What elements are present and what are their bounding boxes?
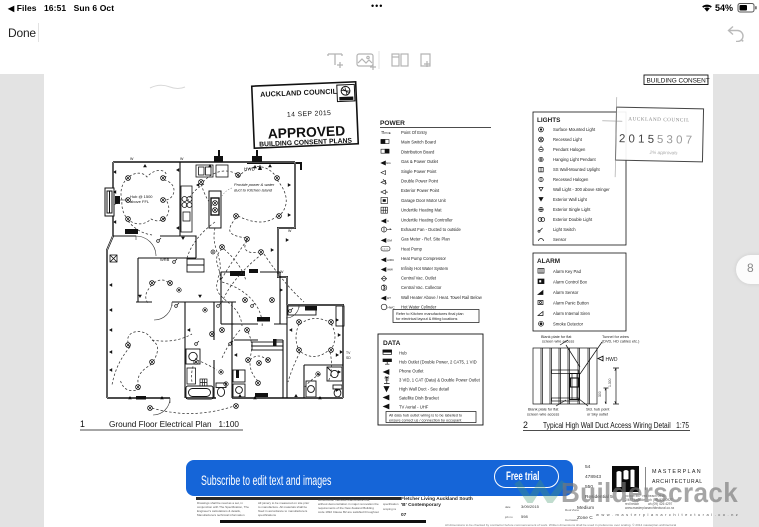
- svg-text:above FFL: above FFL: [130, 199, 150, 204]
- svg-text:BUILDING CONSENT: BUILDING CONSENT: [647, 78, 710, 85]
- svg-text:POWER: POWER: [380, 120, 405, 127]
- svg-text:Phone Outlet: Phone Outlet: [399, 369, 424, 374]
- svg-text:54%: 54%: [715, 3, 733, 13]
- svg-text:Distribution Board: Distribution Board: [401, 149, 435, 154]
- svg-text:Std. hub point: Std. hub point: [586, 408, 610, 412]
- svg-text:Hub Outlet (Double Power, 2 CA: Hub Outlet (Double Power, 2 CAT5, 1 VID: [399, 360, 477, 365]
- svg-text:Alarm Control Box: Alarm Control Box: [553, 280, 588, 285]
- svg-text:AIRC: AIRC: [387, 258, 395, 262]
- svg-text:14 SEP 2015: 14 SEP 2015: [287, 110, 332, 119]
- svg-text:Tunnel for wires: Tunnel for wires: [602, 335, 629, 339]
- svg-text:IHW: IHW: [387, 268, 393, 272]
- svg-text:Alarm Internal Siren: Alarm Internal Siren: [553, 311, 591, 316]
- svg-text:LIGHTS: LIGHTS: [537, 117, 561, 124]
- svg-text:5307: 5307: [657, 134, 696, 147]
- svg-text:Double Power Point: Double Power Point: [401, 179, 439, 184]
- svg-text:2: 2: [523, 420, 528, 430]
- svg-text:All data hub outlet wiring is: All data hub outlet wiring is to be labe…: [389, 414, 462, 418]
- svg-text:Alarm Panic Button: Alarm Panic Button: [553, 301, 590, 306]
- svg-text:C: C: [387, 219, 390, 223]
- svg-text:HWD: HWD: [606, 357, 618, 363]
- svg-text:Pendant Halogen: Pendant Halogen: [553, 147, 586, 152]
- svg-text:DATA: DATA: [383, 340, 401, 347]
- svg-text:3 VID, 1 CAT (Data) & Double P: 3 VID, 1 CAT (Data) & Double Power Outle…: [399, 378, 481, 383]
- svg-text:Provide power & water: Provide power & water: [234, 182, 275, 187]
- svg-text:or Sky outlet: or Sky outlet: [587, 412, 609, 416]
- svg-text:Typical High Wall Duct Access: Typical High Wall Duct Access Wiring Det…: [543, 421, 689, 430]
- svg-text:Exhaust Fan - Ducted to outsid: Exhaust Fan - Ducted to outside: [401, 227, 461, 232]
- svg-text:Gas Meter - Ref. Site Plan: Gas Meter - Ref. Site Plan: [401, 237, 451, 242]
- svg-text:Hot Water Cylinder: Hot Water Cylinder: [401, 305, 437, 310]
- svg-text:Infinity Hot Water System: Infinity Hot Water System: [401, 266, 449, 271]
- svg-text:Satellite Dish Bracket: Satellite Dish Bracket: [399, 396, 440, 401]
- svg-text:2015: 2015: [619, 133, 658, 146]
- svg-text:Exterior Double Light: Exterior Double Light: [553, 217, 593, 222]
- svg-text:2% approvals: 2% approvals: [649, 150, 679, 156]
- svg-text:TV: TV: [346, 351, 351, 355]
- svg-text:Wall Heater Above / Heat. Towe: Wall Heater Above / Heat. Towel Rail Bel…: [401, 295, 483, 300]
- svg-text:for electrical layout & fittin: for electrical layout & fitting location…: [396, 317, 458, 321]
- svg-text:GM: GM: [387, 238, 392, 242]
- svg-text:screen wire access: screen wire access: [527, 412, 559, 416]
- svg-text:Central Vac. Outlet: Central Vac. Outlet: [401, 276, 437, 281]
- svg-text:SD: SD: [346, 356, 351, 360]
- svg-text:Hub: Hub: [399, 351, 407, 356]
- svg-text:WRB: WRB: [160, 257, 170, 262]
- svg-text:Wall Light - 300 above stringe: Wall Light - 300 above stringer: [553, 187, 610, 192]
- svg-text:Main Switch Board: Main Switch Board: [401, 140, 437, 145]
- svg-text:1.300: 1.300: [608, 378, 612, 387]
- svg-text:Central Vac. Collector: Central Vac. Collector: [401, 285, 442, 290]
- svg-text:ALARM: ALARM: [537, 258, 560, 265]
- svg-text:Exterior Power Point: Exterior Power Point: [401, 188, 440, 193]
- svg-text:Ground Floor Electrical Plan: Ground Floor Electrical Plan 1:100: [109, 420, 239, 429]
- svg-text:Blank plate for flat: Blank plate for flat: [541, 335, 572, 339]
- svg-text:Heat Pump Compressor: Heat Pump Compressor: [401, 256, 447, 261]
- svg-text:W: W: [280, 270, 284, 274]
- svg-text:⇈POE: ⇈POE: [381, 130, 391, 135]
- svg-text:Heat Pump: Heat Pump: [401, 246, 423, 251]
- svg-text:duct to Kitchen island: duct to Kitchen island: [234, 188, 273, 193]
- svg-text:Surface Mounted Light: Surface Mounted Light: [553, 127, 596, 132]
- svg-text:ensure correct us / connection: ensure correct us / connection by occupa…: [389, 418, 462, 422]
- svg-text:TV Aerial - UHF: TV Aerial - UHF: [399, 405, 429, 410]
- svg-text:Gas & Power Outlet: Gas & Power Outlet: [401, 159, 439, 164]
- svg-text:Sensor: Sensor: [553, 237, 567, 242]
- svg-text:Smoke Detector: Smoke Detector: [553, 322, 584, 327]
- svg-text:SS Wall-Mounted Uplight: SS Wall-Mounted Uplight: [553, 167, 600, 172]
- svg-text:GG: GG: [386, 161, 391, 165]
- svg-text:Single Power Point: Single Power Point: [401, 169, 437, 174]
- svg-text:HWC: HWC: [388, 306, 396, 310]
- svg-text:Exterior Wall Light: Exterior Wall Light: [553, 197, 588, 202]
- svg-text:300: 300: [598, 391, 602, 397]
- svg-text:Blank plate for flat: Blank plate for flat: [528, 408, 559, 412]
- svg-text:AUCKLAND COUNCIL: AUCKLAND COUNCIL: [260, 87, 338, 99]
- svg-text:Hanging Light Pendant: Hanging Light Pendant: [553, 157, 596, 162]
- svg-text:Recessed Light: Recessed Light: [553, 137, 583, 142]
- svg-text:Alarm Sensor: Alarm Sensor: [553, 290, 579, 295]
- svg-text:Light Switch: Light Switch: [553, 227, 576, 232]
- svg-text:Undertile Heating Controller: Undertile Heating Controller: [401, 217, 453, 222]
- svg-text:W: W: [180, 157, 184, 161]
- svg-text:Exterior Single Light: Exterior Single Light: [553, 207, 591, 212]
- svg-text:HT: HT: [387, 296, 391, 300]
- svg-text:screen wire access: screen wire access: [542, 340, 574, 344]
- svg-text:Recessed Halogen: Recessed Halogen: [553, 177, 589, 182]
- svg-text:High Wall Duct - See detail: High Wall Duct - See detail: [399, 387, 449, 392]
- svg-text:(DVD, HD cables etc.): (DVD, HD cables etc.): [602, 340, 640, 344]
- svg-text:W: W: [130, 157, 134, 161]
- svg-text:E: E: [386, 190, 388, 194]
- svg-text:Point Of Entry: Point Of Entry: [401, 130, 428, 135]
- svg-text:Refer to Kitchen manufactures: Refer to Kitchen manufactures final plan: [396, 312, 464, 316]
- svg-text:W: W: [288, 229, 292, 233]
- svg-text:1: 1: [80, 419, 85, 429]
- svg-text:Undertile Heating Mat: Undertile Heating Mat: [401, 208, 442, 213]
- svg-text:Alarm Key Pad: Alarm Key Pad: [553, 269, 582, 274]
- svg-text:Garage Door Motor Unit: Garage Door Motor Unit: [401, 198, 447, 203]
